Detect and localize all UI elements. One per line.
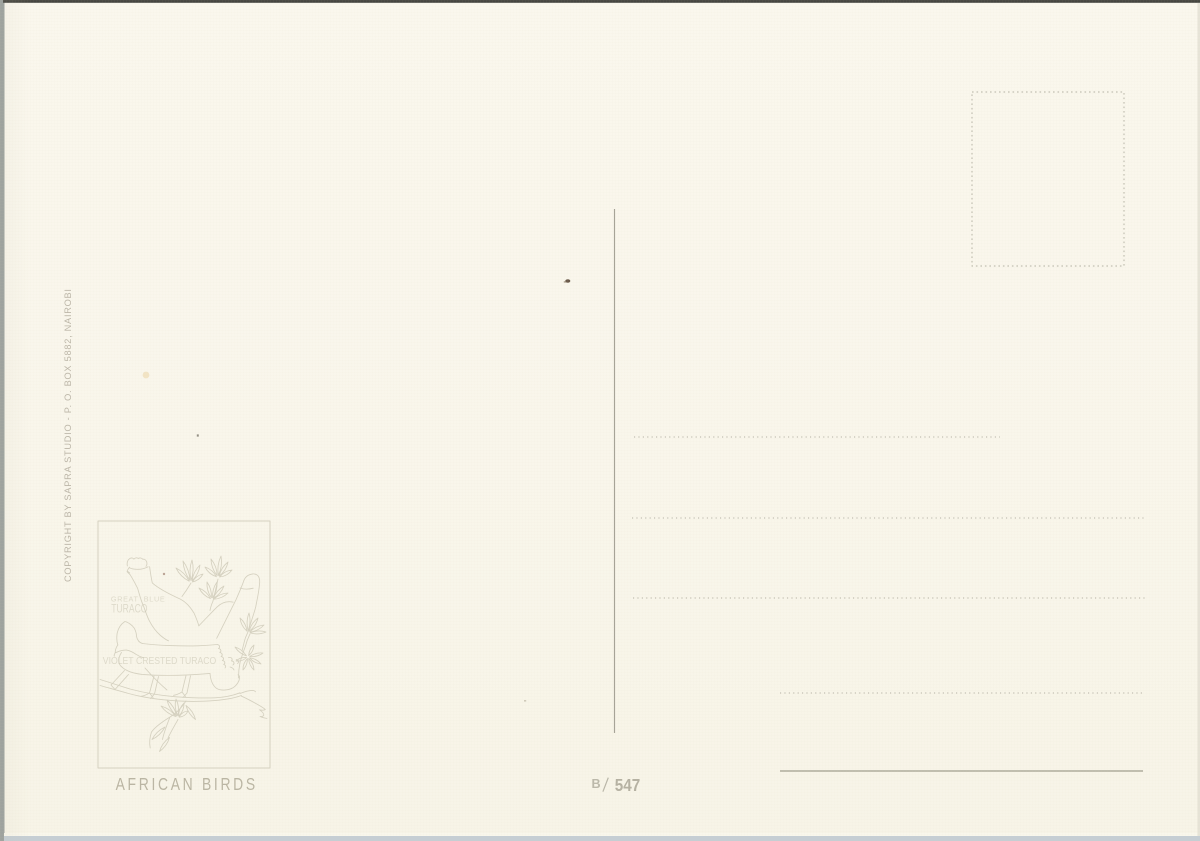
svg-text:VIOLET CRESTED TURACO: VIOLET CRESTED TURACO	[103, 656, 217, 667]
svg-text:TURACO: TURACO	[111, 602, 147, 615]
svg-text:COPYRIGHT BY SAPRA STUDIO - P.: COPYRIGHT BY SAPRA STUDIO - P. O. BOX 58…	[63, 289, 73, 582]
svg-text:547: 547	[615, 775, 641, 795]
svg-text:B: B	[592, 777, 601, 791]
